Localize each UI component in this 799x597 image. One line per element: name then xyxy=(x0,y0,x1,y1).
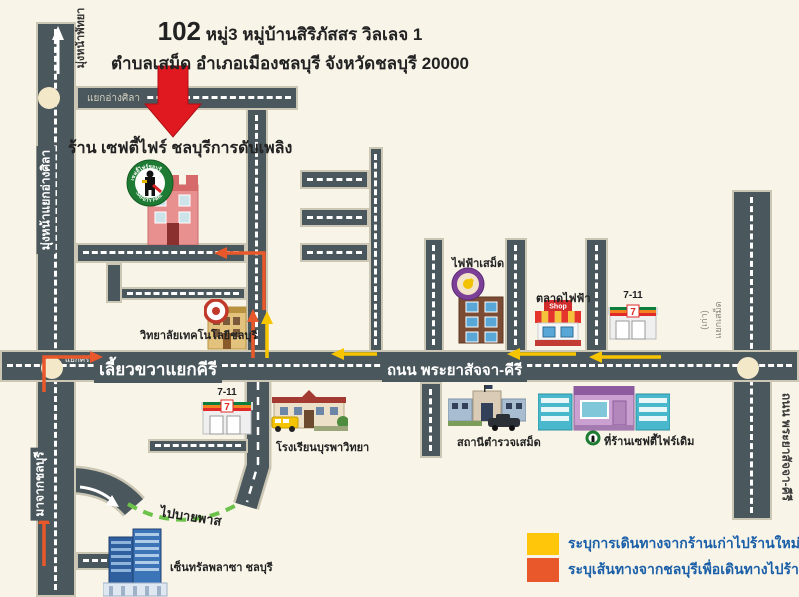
seven-eleven-lower-icon: 7 xyxy=(201,398,253,436)
road-below-shop xyxy=(76,243,246,263)
road-angsila-horizontal: แยกอ่างศิลา xyxy=(76,86,298,110)
road-soi-3 xyxy=(300,243,369,262)
old-shop-label: ที่ร้านเซฟตี้ไฟร์เดิม xyxy=(604,432,694,450)
legend-row-orange: ระบุเส้นทางจากชลบุรีเพื่อเดินทางไปร้านให… xyxy=(527,558,799,582)
map-canvas: แยกอ่างศิลา แยกคีรี เลี้ยวขวาแยกคีรี ถนน… xyxy=(0,0,799,597)
junction-samed-circle xyxy=(737,357,759,379)
safety-fire-logo: เซฟตี้ไฟร์ชลบุรี SAFETY FIRE xyxy=(126,159,174,207)
junction-angsila-circle xyxy=(38,87,60,109)
old-shop-buildings-icon xyxy=(538,386,670,432)
school-building-icon xyxy=(270,390,348,436)
legend-orange-text: ระบุเส้นทางจากชลบุรีเพื่อเดินทางไปร้านให… xyxy=(568,559,799,581)
legend-orange-swatch xyxy=(527,558,559,582)
samed-old-label-line2: (เก่า) xyxy=(697,310,711,330)
road-police-vertical xyxy=(420,382,442,458)
police-label: สถานีตำรวจเสม็ด xyxy=(457,433,541,451)
road-school-stub xyxy=(148,439,248,453)
road-main-horizontal: แยกคีรี เลี้ยวขวาแยกคีรี ถนน พระยาสัจจา-… xyxy=(0,350,799,382)
seven-lower-label: 7-11 xyxy=(201,387,253,398)
left-road-label: มุ่งหน้าแยกอ่างศิลา xyxy=(37,146,56,254)
samed-old-label-line1: แยกเสม็ด xyxy=(711,302,725,339)
right-road-label: ถนน พระยาสัจจา-คีรี xyxy=(777,393,796,501)
road-soi-1 xyxy=(300,170,369,189)
address-number: 102 xyxy=(158,16,201,46)
college-label: วิทยาลัยเทคโนโลยีชลบุรี xyxy=(140,326,257,344)
electricity-building-icon xyxy=(450,266,506,346)
old-shop-mini-logo xyxy=(585,430,601,446)
police-station-icon xyxy=(448,385,526,433)
seven-eleven-upper-icon: 7 xyxy=(608,303,658,343)
to-pattaya-label: มุ่งหน้าพัทยา xyxy=(71,8,89,69)
main-road-left-text: เลี้ยวขวาแยกคีรี xyxy=(94,356,222,383)
seven-digit-lower: 7 xyxy=(224,402,230,413)
road-electricity-east xyxy=(505,238,527,352)
road-thin-vertical xyxy=(369,147,383,352)
central-plaza-icon xyxy=(103,527,169,597)
seven-digit-upper: 7 xyxy=(630,307,636,318)
central-label: เซ็นทรัลพลาซา ชลบุรี xyxy=(170,558,273,576)
new-shop-label: ร้าน เซฟตี้ไฟร์ ชลบุรีการดับเพลิง xyxy=(68,136,292,161)
kiri-junction-label: แยกคีรี xyxy=(60,353,94,366)
legend-row-yellow: ระบุการเดินทางจากร้านเก่าไปร้านใหม่ xyxy=(527,533,799,555)
junction-kiri-circle xyxy=(41,357,63,379)
legend-yellow-swatch xyxy=(527,533,559,555)
main-road-center-text: ถนน พระยาสัจจา-คีรี xyxy=(382,358,527,382)
address-line1: หมู่3 หมู่บ้านสิริภัสสร วิลเลจ 1 xyxy=(206,25,423,44)
angsila-junction-label: แยกอ่างศิลา xyxy=(82,91,145,106)
seven-upper-label: 7-11 xyxy=(608,290,658,301)
from-chonburi-label: มาจากชลบุรี xyxy=(31,447,50,520)
electricity-label: ไฟฟ้าเสม็ด xyxy=(452,254,504,272)
address-title: 102 หมู่3 หมู่บ้านสิริภัสสร วิลเลจ 1 ตำบ… xyxy=(90,16,490,77)
road-soi-2 xyxy=(300,208,369,227)
legend-yellow-text: ระบุการเดินทางจากร้านเก่าไปร้านใหม่ xyxy=(568,533,799,555)
address-line2: ตำบลเสม็ด อำเภอเมืองชลบุรี จังหวัดชลบุรี… xyxy=(90,50,490,77)
road-electricity-west xyxy=(424,238,444,352)
market-label: ตลาดไฟฟ้า xyxy=(536,289,591,307)
school-label: โรงเรียนบุรพาวิทยา xyxy=(276,438,369,456)
